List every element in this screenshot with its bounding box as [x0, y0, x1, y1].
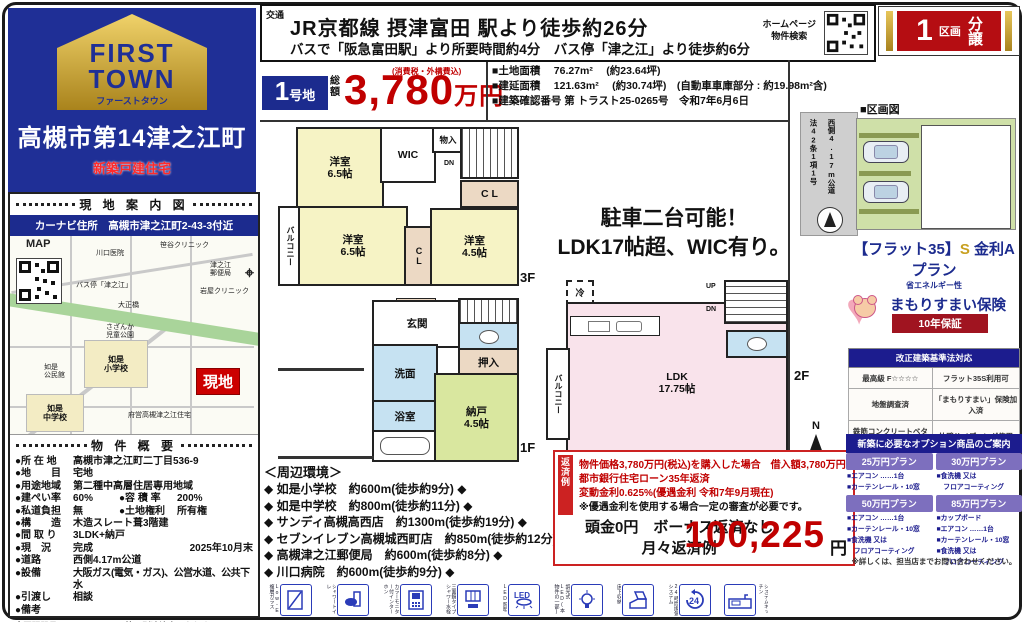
map-community-center: 如是 公民館	[44, 364, 65, 380]
price-amount: 3,780万円	[344, 66, 504, 114]
logo-kana: ファーストタウン	[57, 94, 207, 107]
plan-name: 85万円プラン	[936, 495, 1023, 512]
equip-ventilation: 24時間換気システム 24	[667, 584, 711, 616]
stairs-up-label: UP	[706, 283, 716, 290]
site-line	[278, 456, 374, 459]
loan-amount-unit: 円	[830, 534, 847, 559]
bath-tub-area	[372, 430, 438, 462]
sink-icon	[616, 321, 642, 332]
option-plan: 30万円プラン ■食洗機 又は フロアコーティング	[936, 453, 1023, 492]
map-site-badge: 現地	[196, 368, 240, 395]
surroundings-item: ◆ セブンイレブン高槻城西町店 約850m(徒歩約12分) ◆	[264, 531, 552, 548]
bathtub-icon	[380, 437, 430, 455]
loan-line1: 物件価格3,780万円(税込)を購入した場合 借入額3,780万円	[579, 456, 846, 471]
spec-cell: 「まもりすまい」保険加入済	[932, 389, 1019, 421]
washlet-icon	[337, 584, 369, 616]
lot-compass-icon	[817, 207, 843, 233]
surroundings: ＜周辺環境＞ ◆ 如是小学校 約600m(徒歩約9分) ◆ ◆ 如是中学校 約8…	[264, 462, 552, 580]
equip-shower-faucet: 三面鏡タイプシャワー水栓	[445, 584, 489, 616]
spec-header: 改正建築基準法対応	[849, 349, 1020, 368]
room-yokushitsu: 浴室	[372, 400, 438, 434]
equip-kitchen: システムキッチン	[724, 584, 768, 616]
equip-floor-storage: 床下収納	[616, 584, 655, 616]
floor-label-2f: 2F	[794, 368, 809, 383]
overview-row: ●地 目宅地	[10, 468, 258, 480]
loan-tab: 返済例	[558, 455, 573, 515]
room-south-6_5: 洋室 6.5帖	[298, 206, 408, 286]
room-wic: WIC	[380, 127, 436, 183]
bulb-icon	[571, 584, 603, 616]
option-plan: 25万円プラン ■エアコン ……1台 ■カーテンレール・10窓	[846, 453, 933, 492]
plan-name: 30万円プラン	[936, 453, 1023, 470]
overview-row: ●設備大阪ガス(電気・ガス)、公営水道、公共下水	[10, 568, 258, 593]
lot-plan: 法42条1項1号 西側4.17m公道	[796, 112, 1018, 234]
stairs-3f	[460, 127, 519, 179]
land-info: ■土地面積 76.27m² (約23.64坪) ■建延面積 121.63m² (…	[492, 64, 874, 109]
room-east-4_5: 洋室 4.5帖	[430, 208, 519, 286]
map-busstop: バス停「津之江」	[76, 282, 132, 290]
left-column: 現 地 案 内 図 カーナビ住所 高槻市津之江町2-43-3付近	[8, 192, 260, 618]
building-permit: ■建築確認番号 第 トラスト25-0265号 令和7年6月6日	[492, 94, 874, 109]
vanity-icon	[457, 584, 489, 616]
overview-row: ●現 況完成2025年10月末	[10, 543, 258, 555]
room-nando: 納戸 4.5帖	[434, 373, 519, 462]
loan-example-box: 返済例 物件価格3,780万円(税込)を購入した場合 借入額3,780万円 都市…	[553, 450, 855, 566]
led-icon: LED	[508, 584, 540, 616]
insurance-box: ♥ まもりすまい保険 10年保証	[846, 290, 1022, 342]
guide-map-header: 現 地 案 内 図	[10, 194, 258, 215]
toilet-icon	[747, 337, 767, 351]
catch-copy: 駐車二台可能！ LDK17帖超、WIC有り。	[556, 204, 792, 262]
car-icon	[863, 141, 909, 163]
overview-note: ※照明器具、カーテンレール等は別途注文となります。 CATV時、お客様負担となり…	[10, 617, 258, 622]
overview-header: 物 件 概 要	[10, 435, 258, 456]
equipment-strip: Low-E複層ガラス シャワートイレ カラーモニター付インターホン 三面鏡タイプ…	[268, 584, 1018, 618]
gold-bar	[1005, 11, 1012, 51]
overview-row: ●構 造木造スレート葺3階建	[10, 518, 258, 530]
surroundings-item: ◆ 如是中学校 約800m(徒歩約11分) ◆	[264, 498, 552, 515]
loan-line3: 変動金利0.625%(優遇金利 令和7年9月現在)	[579, 484, 773, 499]
insurance-warranty: 10年保証	[892, 314, 988, 333]
glass-icon	[280, 584, 312, 616]
spec-cell: フラット35S利用可	[932, 368, 1019, 389]
map-label: MAP	[26, 240, 50, 248]
map-elementary-school: 如是 小学校	[84, 340, 148, 388]
floor-label-1f: 1F	[520, 440, 535, 455]
price-total-label: 総額	[330, 76, 342, 98]
carnav-address: カーナビ住所 高槻市津之江町2-43-3付近	[10, 215, 258, 236]
option-plans: 25万円プラン ■エアコン ……1台 ■カーテンレール・10窓 30万円プラン …	[846, 453, 1022, 567]
equip-intercom: カラーモニター付インターホン	[382, 584, 432, 616]
driveway-line	[859, 209, 919, 214]
lot-count-banner: 1 区画 分譲	[878, 6, 1020, 56]
kitchen-icon	[724, 584, 756, 616]
surroundings-item: ◆ サンディ高槻高西店 約1300m(徒歩約19分) ◆	[264, 514, 552, 531]
surroundings-item: ◆ 高槻津之江郵便局 約600m(徒歩約8分) ◆	[264, 547, 552, 564]
insurance-title: まもりすまい保険	[890, 294, 1006, 315]
divider	[260, 120, 788, 122]
plans-note: ※詳しくは、担当店までお問い合わせください。	[846, 556, 1022, 567]
divider	[788, 60, 790, 480]
gold-bar	[886, 11, 893, 51]
toilet-icon	[479, 330, 499, 344]
lot-parcel	[856, 118, 1016, 230]
surroundings-item: ◆ 川口病院 約600m(徒歩約9分) ◆	[264, 564, 552, 581]
room-genkan: 玄関	[372, 300, 462, 348]
stove-icon	[588, 321, 610, 332]
divider	[486, 62, 488, 120]
map-qr-code	[16, 258, 62, 304]
overview-row: ●用途地域第二種中高層住居専用地域	[10, 481, 258, 493]
lot-number-chip: 1 号地	[262, 76, 328, 110]
map-clinic1: 笹谷クリニック	[160, 242, 209, 250]
map-hospital: 川口医院	[96, 250, 124, 258]
overview-row: ●建ぺい率60%●容 積 率200%	[10, 493, 258, 505]
plan-name: 50万円プラン	[846, 495, 933, 512]
stairs-dn-label: DN	[444, 160, 454, 167]
lot-count: 1	[916, 16, 933, 46]
plan-name: 25万円プラン	[846, 453, 933, 470]
property-subtitle: 新築戸建住宅	[8, 158, 256, 177]
loan-monthly-amount: 100,225	[684, 514, 825, 556]
svg-text:24: 24	[689, 596, 699, 606]
floor-storage-icon	[622, 584, 654, 616]
equip-glass: Low-E複層ガラス	[268, 584, 312, 616]
loan-line2: 都市銀行住宅ローン35年返済	[579, 470, 710, 485]
kitchen-counter	[570, 316, 660, 336]
stairs-dn-label-2f: DN	[706, 306, 716, 313]
vent-24h-icon: 24	[679, 584, 711, 616]
overview-row: ●道路西側4.17m公道	[10, 555, 258, 567]
stairs-2f	[724, 280, 788, 324]
map-park: さざんか 児童公園	[106, 324, 134, 340]
car-icon	[863, 181, 909, 203]
lot-road: 法42条1項1号 西側4.17m公道	[800, 112, 858, 236]
brand-panel: FIRSTTOWN ファーストタウン 高槻市第14津之江町 新築戸建住宅	[8, 8, 256, 192]
transport-line1: JR京都線 摂津富田 駅より徒歩約26分	[290, 12, 649, 41]
homepage-search-label: ホームページ 物件検索	[762, 18, 816, 42]
flyer-page: FIRSTTOWN ファーストタウン 高槻市第14津之江町 新築戸建住宅 現 地…	[0, 0, 1024, 622]
map-bridge: 大正橋	[118, 302, 139, 310]
map-junior-high: 如是 中学校	[26, 394, 84, 432]
map-compass-icon: ⌖	[245, 270, 254, 278]
spec-cell: 最高級 F☆☆☆☆	[849, 368, 933, 389]
spec-cell: 地盤調査済	[849, 389, 933, 421]
homepage-qr-code[interactable]	[824, 11, 868, 55]
map-clinic2: 岩屋クリニック	[200, 288, 249, 296]
building-area: ■建延面積 121.63m² (約30.74坪) (自動車車庫部分 : 約19.…	[492, 79, 874, 94]
floor-label-3f: 3F	[520, 270, 535, 285]
map-post-office: 津之江 郵便局	[210, 262, 231, 278]
overview-row: ●備考	[10, 605, 258, 617]
loan-line4: ※優遇金利を使用する場合一定の審査が必要です。	[579, 498, 808, 513]
first-town-logo: FIRSTTOWN ファーストタウン	[57, 14, 207, 110]
overview-row: ●所 在 地高槻市津之江町二丁目536-9	[10, 456, 258, 468]
overview-row: ●私道負担無●土地権利所有権	[10, 506, 258, 518]
surroundings-item: ◆ 如是小学校 約600m(徒歩約9分) ◆	[264, 481, 552, 498]
intercom-icon	[400, 584, 432, 616]
map-public-housing: 府営高槻津之江住宅	[128, 412, 191, 420]
overview-row: ●間 取 り3LDK+納戸	[10, 530, 258, 542]
options-header: 新築に必要なオプション商品のご案内	[846, 434, 1022, 453]
room-cl1: C L	[460, 180, 519, 208]
surroundings-header: ＜周辺環境＞	[264, 462, 552, 481]
transport-line2: バスで「阪急富田駅」より所要時間約4分 バス停「津之江」より徒歩約6分	[290, 38, 750, 58]
road-width-label: 西側4.17m公道	[827, 119, 836, 219]
property-title: 高槻市第14津之江町	[8, 118, 256, 153]
equip-led: LED照明 LED	[502, 584, 541, 616]
equip-dimmer-led: 調光式LED(本物件の一部)	[553, 584, 603, 616]
lot-building	[921, 125, 1011, 229]
transport-box: 交通 JR京都線 摂津富田 駅より徒歩約26分 バスで「阪急富田駅」より所要時間…	[260, 4, 876, 62]
room-west-6_5: 洋室 6.5帖	[296, 127, 384, 209]
driveway-line	[859, 171, 911, 176]
room-senmen: 洗面	[372, 344, 438, 404]
equip-washlet: シャワートイレ	[325, 584, 369, 616]
lot-count-kukaku: 区画	[939, 23, 961, 39]
toilet-2f	[726, 330, 788, 358]
lot-count-bunjo: 分譲	[967, 16, 982, 46]
transport-label: 交通	[266, 8, 284, 21]
logo-line2: TOWN	[89, 64, 176, 94]
site-line	[278, 368, 364, 371]
bear-face-icon	[854, 298, 876, 318]
balcony-2f: バルコニー	[546, 348, 570, 440]
flat35-label: 【フラット35】S 金利Aプラン 省エネルギー性	[846, 238, 1022, 291]
driveway-line	[859, 133, 919, 138]
area-map: MAP 川口医院 笹谷クリニック 津之江 郵便局 岩屋クリニック バス停「津之江…	[10, 236, 258, 435]
land-area: ■土地面積 76.27m² (約23.64坪)	[492, 64, 874, 79]
road-law-label: 法42条1項1号	[809, 119, 818, 219]
overview-list: ●所 在 地高槻市津之江町二丁目536-9 ●地 目宅地 ●用途地域第二種中高層…	[10, 456, 258, 617]
overview-row: ●引渡し相談	[10, 592, 258, 604]
